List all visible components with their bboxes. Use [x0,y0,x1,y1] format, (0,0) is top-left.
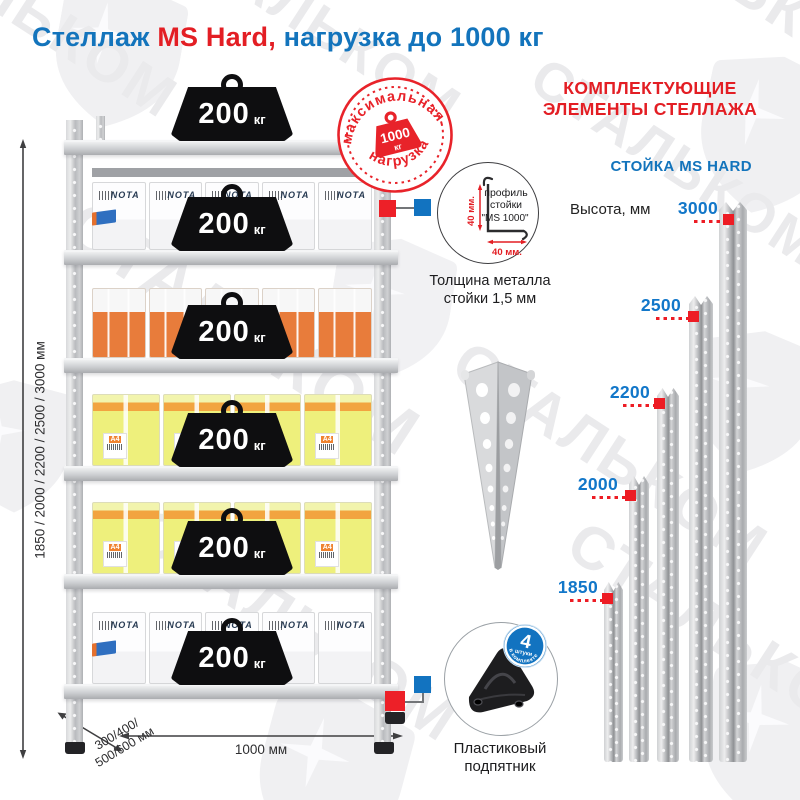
post-height-label-2500: 2500 [615,295,681,316]
height-marker [625,490,636,501]
title-model: MS Hard, [157,22,276,52]
weight-200kg: 200кг [171,87,293,141]
profile-dim-horizontal: 40 мм. [492,247,522,258]
dotted-leader [592,496,625,499]
profile-label: стойки [490,199,522,211]
post-section-title: СТОЙКА MS HARD [560,158,752,175]
foot-caption: Пластиковый подпятник [437,740,563,776]
foot-marker-red [385,691,405,711]
shelf-board [64,574,398,589]
rack-foot-cap [65,742,85,754]
height-marker [688,311,699,322]
weight-200kg: 200кг [171,413,293,467]
connector-line [422,692,424,702]
post-height-label-2200: 2200 [584,382,650,403]
dotted-leader [656,317,688,320]
height-marker [654,398,665,409]
shelf-board [64,466,398,481]
connector-line [394,207,416,209]
profile-label: "MS 1000" [481,213,529,224]
connector-line [404,701,424,703]
dotted-leader [623,404,654,407]
weight-200kg: 200кг [171,631,293,685]
title-suffix: нагрузка до 1000 кг [276,22,544,52]
profile-marker-blue [414,199,431,216]
title-prefix: Стеллаж [32,22,157,52]
quantity-badge: 4 штуки в комплекте [498,619,553,674]
shelf-board [64,684,398,699]
rack-width-dimension: 1000 мм [235,742,287,757]
weight-200kg: 200кг [171,305,293,359]
post-height-label-2000: 2000 [552,474,618,495]
height-label: Высота, мм [570,201,650,218]
shelf-board [64,250,398,265]
profile-caption: Толщина металла стойки 1,5 мм [427,272,553,308]
rack-foot-cap [385,712,405,724]
rack-foot-cap [374,742,394,754]
foot-marker-blue [414,676,431,693]
upright-perspective-figure [448,352,548,577]
upright-post-2000 [629,476,649,762]
upright-post-2200 [657,388,679,762]
components-heading: КОМПЛЕКТУЮЩИЕ ЭЛЕМЕНТЫ СТЕЛЛАЖА [540,78,760,120]
rack-front-post-left [66,120,83,744]
height-marker [602,593,613,604]
weight-200kg: 200кг [171,521,293,575]
dotted-leader [570,599,602,602]
shelf-board [64,358,398,373]
upright-post-1850 [604,582,623,762]
upright-post-2500 [689,296,713,762]
profile-label: профиль [484,187,528,199]
product-infographic: СТАЛЬКОМ СТАЛЬКОМ СТАЛЬКОМ СТАЛЬКОМ СТАЛ… [0,0,800,800]
post-height-label-3000: 3000 [652,198,718,219]
upright-post-3000 [719,202,747,762]
profile-marker-red [379,200,396,217]
rack-height-dimension: 1850 / 2000 / 2200 / 2500 / 3000 мм [33,341,48,558]
profile-dim-vertical: 40 мм. [466,196,477,226]
height-marker [723,214,734,225]
page-title: Стеллаж MS Hard, нагрузка до 1000 кг [32,22,544,53]
post-height-label-1850: 1850 [532,577,598,598]
weight-200kg: 200кг [171,197,293,251]
dotted-leader [694,220,724,223]
